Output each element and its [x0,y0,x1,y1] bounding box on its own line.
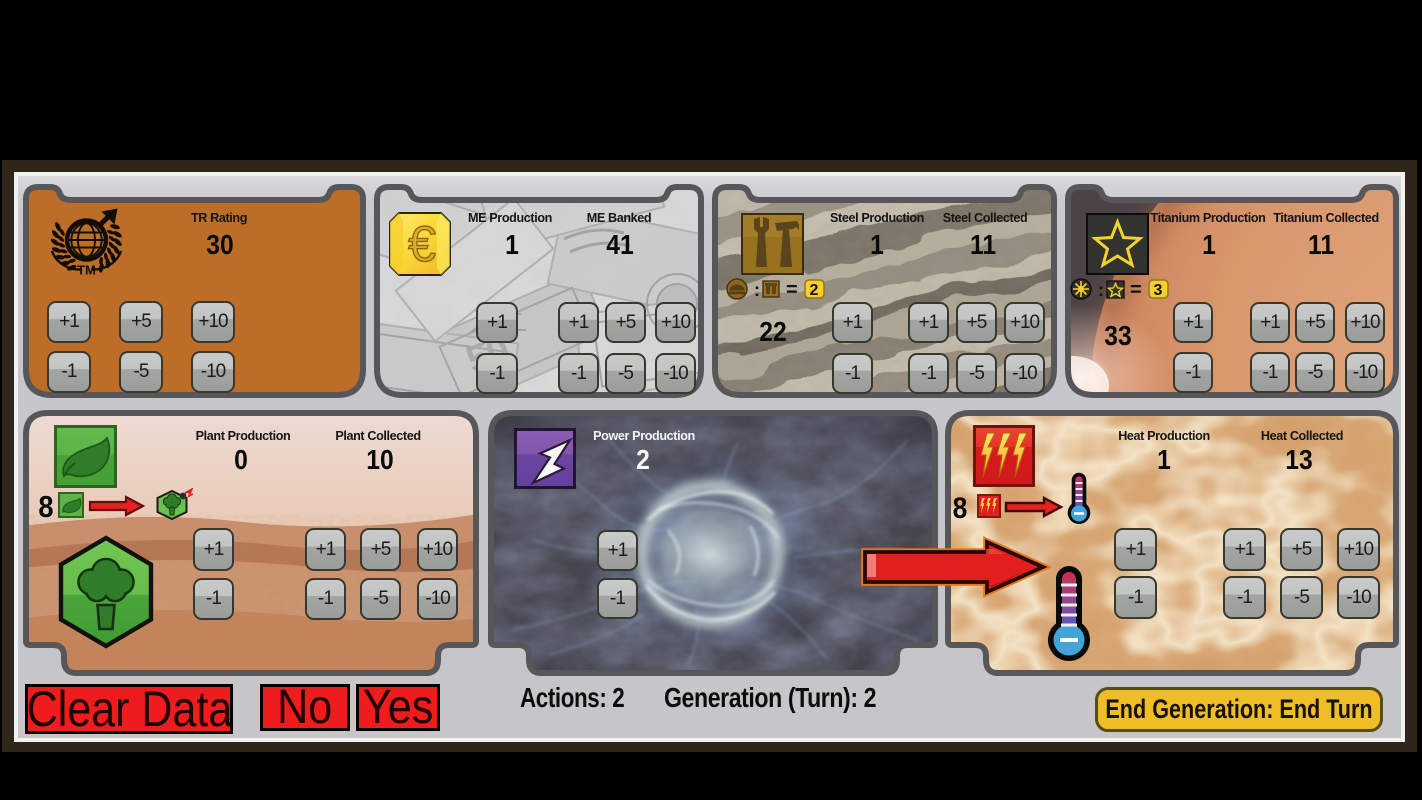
svg-text:TM: TM [77,263,96,278]
svg-text:2: 2 [810,282,819,299]
svg-text:=: = [786,279,798,301]
svg-text::: : [1098,280,1104,300]
svg-text:3: 3 [1154,282,1163,299]
svg-text:€: € [408,216,436,272]
svg-text:=: = [1130,279,1142,301]
svg-text::: : [754,280,760,300]
